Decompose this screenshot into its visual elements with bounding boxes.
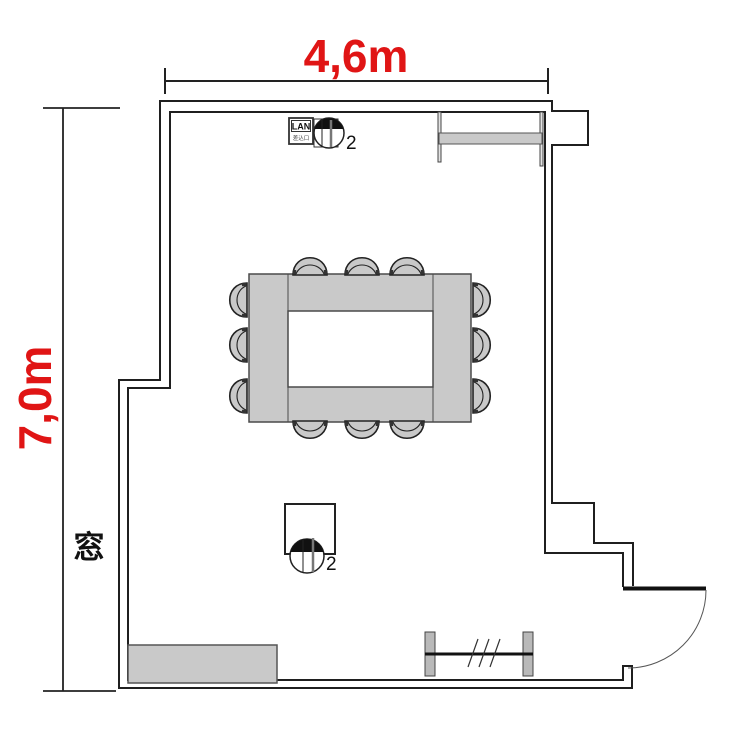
chair-bottom-2 [345,421,379,438]
chair-right-1 [473,283,490,317]
conference-table [249,274,471,422]
lan-port: LAN 差込口 [289,118,313,144]
table-inner-opening [288,311,433,387]
outlet-bottom-count: 2 [326,554,337,575]
window-label: 窓 [74,530,105,565]
floor-plan-canvas: 4,6m 7,0m 窓 [0,0,750,750]
chair-left-2 [230,328,247,362]
floor-plan: 4,6m 7,0m 窓 [0,0,750,750]
width-dimension-label: 4,6m [304,30,409,82]
desk-with-outlet: 2 [285,504,337,575]
outlet-top-count: 2 [346,133,357,154]
lan-sublabel: 差込口 [293,134,310,142]
height-dimension-label: 7,0m [9,346,61,451]
chair-right-3 [473,379,490,413]
door [623,589,706,669]
coat-rack [425,632,533,676]
chair-top-1 [293,258,327,275]
chair-top-2 [345,258,379,275]
chair-left-3 [230,379,247,413]
chair-bottom-1 [293,421,327,438]
chair-right-2 [473,328,490,362]
wall-shelf [438,112,543,166]
chair-top-3 [390,258,424,275]
chair-left-1 [230,283,247,317]
door-swing-arc [628,590,706,668]
outlet-symbol-top: 2 [314,118,357,154]
wall-shelf-board [439,133,542,144]
cabinet [128,645,277,683]
chair-bottom-3 [390,421,424,438]
lan-label: LAN [292,122,311,132]
